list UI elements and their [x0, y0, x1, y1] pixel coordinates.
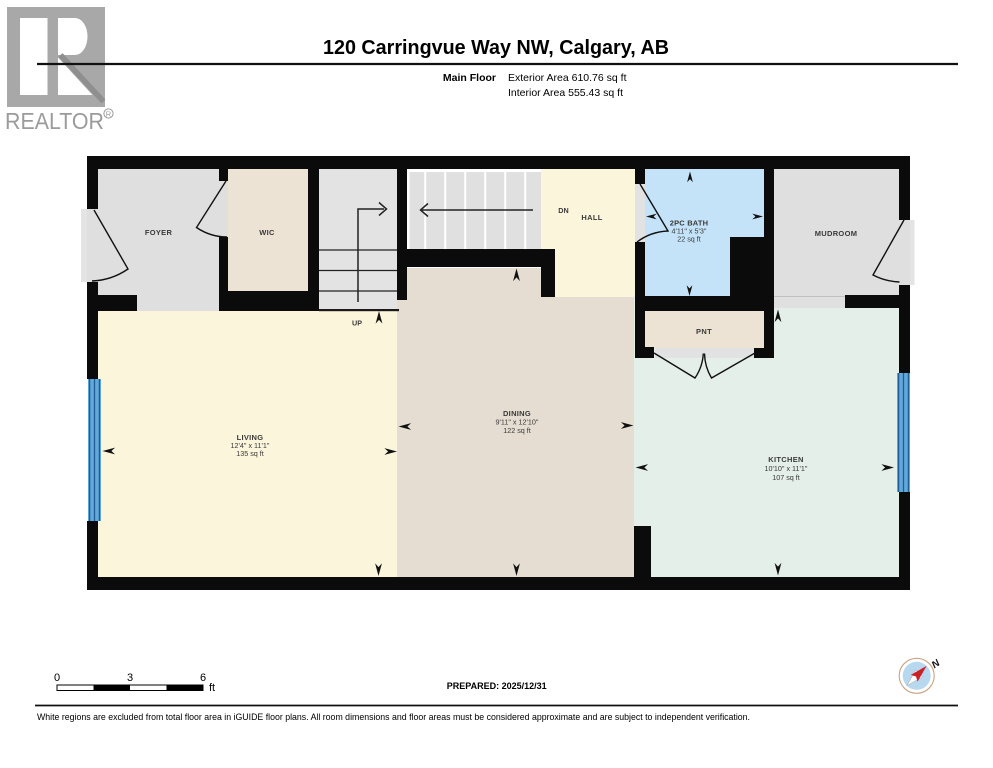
svg-text:DN: DN [558, 206, 568, 215]
svg-text:WIC: WIC [259, 228, 275, 237]
svg-text:R: R [106, 109, 112, 118]
svg-text:0: 0 [54, 672, 60, 684]
svg-text:FOYER: FOYER [145, 228, 173, 237]
svg-text:REALTOR: REALTOR [5, 108, 104, 134]
svg-text:3: 3 [127, 672, 133, 684]
svg-text:122 sq ft: 122 sq ft [503, 426, 531, 435]
svg-text:HALL: HALL [581, 213, 602, 222]
svg-text:135 sq ft: 135 sq ft [236, 449, 264, 458]
svg-text:107 sq ft: 107 sq ft [772, 473, 800, 482]
svg-text:22 sq ft: 22 sq ft [677, 235, 701, 244]
svg-text:UP: UP [352, 319, 362, 328]
svg-text:6: 6 [200, 672, 206, 684]
svg-text:MUDROOM: MUDROOM [815, 229, 858, 238]
svg-text:ft: ft [209, 682, 215, 694]
svg-text:KITCHEN: KITCHEN [768, 455, 803, 464]
svg-text:PREPARED: 2025/12/31: PREPARED: 2025/12/31 [447, 681, 547, 691]
svg-text:10'10" x 11'1": 10'10" x 11'1" [765, 464, 808, 473]
svg-text:Main Floor: Main Floor [443, 72, 496, 84]
svg-text:PNT: PNT [696, 327, 712, 336]
svg-text:Interior Area 555.43 sq ft: Interior Area 555.43 sq ft [508, 87, 623, 99]
svg-text:Exterior Area 610.76 sq ft: Exterior Area 610.76 sq ft [508, 72, 627, 84]
svg-text:White regions are excluded fro: White regions are excluded from total fl… [37, 712, 750, 722]
svg-text:120 Carringvue Way NW, Calgary: 120 Carringvue Way NW, Calgary, AB [323, 37, 669, 59]
